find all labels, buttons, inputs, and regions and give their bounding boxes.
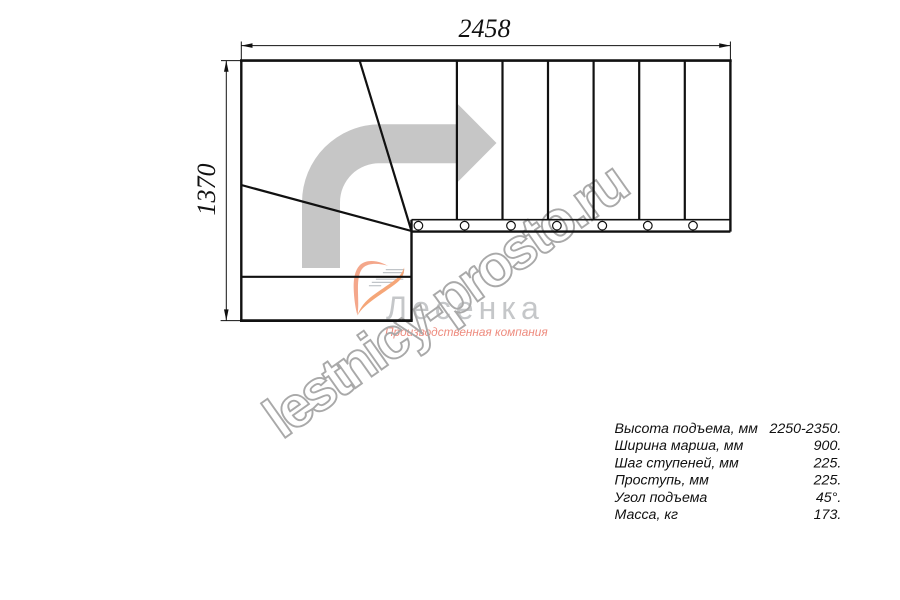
svg-text:173.: 173. [814,507,842,523]
svg-text:Высота подъема, мм: Высота подъема, мм [615,421,759,437]
svg-text:225.: 225. [813,473,842,489]
svg-text:2458: 2458 [459,14,511,43]
svg-text:Угол подъема: Угол подъема [614,490,708,506]
svg-text:900.: 900. [814,438,842,454]
svg-text:45°.: 45°. [816,490,841,506]
svg-text:Масса, кг: Масса, кг [615,507,679,523]
svg-text:Проступь, мм: Проступь, мм [615,473,710,489]
svg-text:1370: 1370 [192,164,221,216]
svg-text:Ширина марша, мм: Ширина марша, мм [615,438,744,454]
svg-text:225.: 225. [813,455,842,471]
svg-text:2250-2350.: 2250-2350. [769,421,842,437]
svg-text:Шаг ступеней, мм: Шаг ступеней, мм [615,455,739,471]
